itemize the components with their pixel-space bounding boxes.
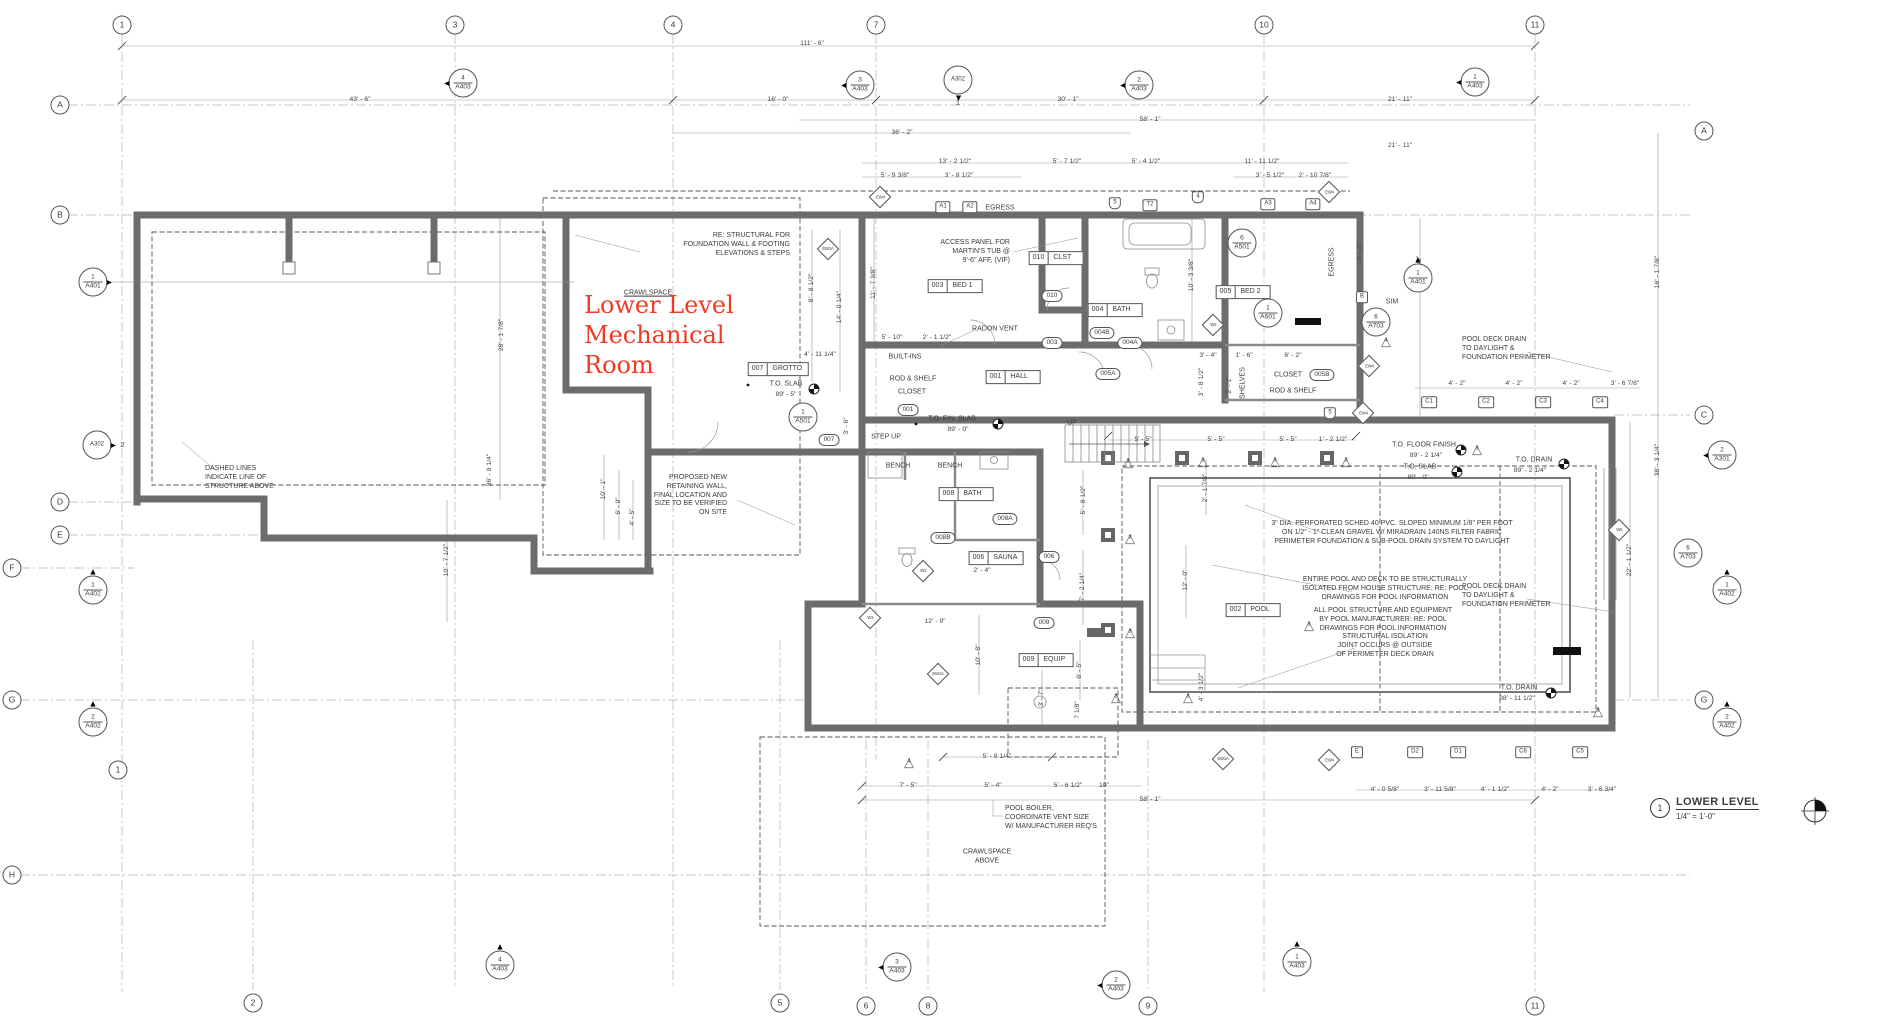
annotation-note: POOL DECK DRAIN TO DAYLIGHT & FOUNDATION… <box>1462 583 1551 609</box>
section-marker-1-a601: 1A601 <box>1254 299 1283 328</box>
dimension-label: 10' - 1" <box>600 478 608 499</box>
annotation-note: ENTIRE POOL AND DECK TO BE STRUCTURALLY … <box>1302 576 1468 602</box>
room-tag-bed-2: 005BED 2 <box>1216 285 1271 299</box>
keynote-triangle: △3 <box>1107 690 1125 705</box>
tag-w6: W6 <box>1608 519 1631 542</box>
section-marker-2-a403: 2A403▲ <box>1125 71 1154 100</box>
type-tag: T2 <box>1142 199 1157 211</box>
dimension-label: 5' - 10" <box>881 334 902 342</box>
annotation-note: PROPOSED NEW RETAINING WALL, FINAL LOCAT… <box>654 474 727 518</box>
dimension-label: 5' - 9 3/8" <box>881 172 910 180</box>
drawing-number: 1 <box>1650 798 1670 818</box>
door-tag: 003 <box>1042 337 1063 349</box>
annotation-note: EGRESS <box>1329 247 1338 276</box>
annotation-note: T.O. FLOOR FINISH <box>1392 442 1456 451</box>
section-marker-1-a401: 1A401▲ <box>1404 264 1433 293</box>
dimension-label: 4' - 1 1/2" <box>1481 786 1510 794</box>
annotation-note: BENCH <box>938 463 963 472</box>
room-tag-sauna: 006SAUNA <box>969 551 1024 565</box>
annotation-note: SHELVES <box>1240 367 1249 399</box>
tag-ew4: EW4 <box>1318 181 1341 204</box>
type-tag: 5 <box>1324 407 1336 419</box>
door-tag: 010 <box>1042 290 1063 302</box>
type-tag: 4 <box>1192 191 1204 203</box>
annotation-note: EGRESS <box>985 205 1014 214</box>
dimension-label: 89' - 0" <box>947 426 968 434</box>
section-marker-2-a403: 2A403▲ <box>1102 971 1131 1000</box>
dimension-label: 3' - 6 3/4" <box>1588 786 1617 794</box>
dimension-label: 16' - 1 7/8" <box>1654 256 1662 288</box>
grid-bubble-f: F <box>3 559 22 578</box>
dimension-label: 4' - 2" <box>1505 380 1522 388</box>
dimension-label: 3' - 7" <box>1038 689 1046 706</box>
section-marker-1-a401: 1A401▲ <box>79 268 108 297</box>
type-tag: C3 <box>1535 396 1551 408</box>
grid-bubble-c-right: C <box>1695 406 1714 425</box>
type-tag: B <box>1356 291 1368 303</box>
door-tag: 006 <box>1039 551 1060 563</box>
keynote-triangle: △4 <box>900 755 918 770</box>
annotation-note: UP <box>1067 420 1077 429</box>
dimension-label: 21' - 11" <box>1388 142 1412 150</box>
dimension-label: 21' - 11" <box>1388 96 1412 104</box>
room-tag-bath: 008BATH <box>939 487 994 501</box>
annotation-note: STEP UP <box>871 434 901 443</box>
keynote-triangle: △3 <box>1179 690 1197 705</box>
dimension-label: 4' - 2" <box>1562 380 1579 388</box>
annotation-note: ACCESS PANEL FOR MARTIN'S TUB @ 9'-6" AF… <box>940 239 1010 265</box>
annotation-note: T.O. SLAB <box>1404 464 1437 473</box>
drawing-scale: 1/4" = 1'-0" <box>1676 812 1759 821</box>
annotation-note: T.O. DRAIN <box>1501 685 1538 694</box>
annotation-note: RE: STRUCTURAL FOR FOUNDATION WALL & FOO… <box>683 232 790 258</box>
dimension-label: 89' - 0" <box>1407 474 1428 482</box>
section-marker-4-a403: 4A403▲ <box>449 69 478 98</box>
grid-bubble-1b: 1 <box>109 761 128 780</box>
annotation-layer: 111' - 6"43' - 6"16' - 0"30' - 1"21' - 1… <box>0 0 1880 1018</box>
section-marker-6-a703: 6A703 <box>1362 308 1391 337</box>
door-tag: 004B <box>1089 327 1114 339</box>
dimension-label: 7 1/8" <box>1074 701 1082 719</box>
dimension-label: 6' - 2" <box>1284 352 1301 360</box>
dimension-label: 14' - 0 1/4" <box>836 291 844 323</box>
dimension-label: 3' - 4" <box>1199 352 1216 360</box>
dimension-label: 3' - 5 1/2" <box>1256 172 1285 180</box>
annotation-note: ROD & SHELF <box>1270 388 1317 397</box>
annotation-note: T.O. FIN. SLAB <box>928 416 976 425</box>
dimension-label: 36' - 9 1/4" <box>486 454 494 486</box>
section-marker-1-a403: 1A403▲ <box>1283 948 1312 977</box>
north-arrow-icon <box>1800 796 1830 826</box>
elevation-target-icon <box>1546 688 1557 699</box>
grid-bubble-g-right: G <box>1695 691 1714 710</box>
dimension-label: 3' - 8 1/2" <box>1198 368 1206 397</box>
dimension-label: 4' - 2" <box>1448 380 1465 388</box>
dimension-label: 12' - 0" <box>1182 569 1190 590</box>
dimension-label: 5' - 5" <box>1134 436 1151 444</box>
dimension-label: 10" <box>1099 782 1109 790</box>
dimension-label: 10' - 8" <box>975 644 983 665</box>
annotation-note: ROD & SHELF <box>890 376 937 385</box>
annotation-note: DASHED LINES INDICATE LINE OF STRUCTURE … <box>205 465 274 491</box>
dimension-label: 58' - 1" <box>1139 116 1160 124</box>
dimension-label: 3' - 6 7/8" <box>1611 380 1640 388</box>
dimension-label: 36' - 2" <box>891 129 912 137</box>
dimension-label: 10' - 3 3/8" <box>1188 259 1196 291</box>
type-tag: C4 <box>1592 396 1608 408</box>
tag-w2: W2 <box>1202 314 1225 337</box>
section-marker-1-a402: 1A402▲ <box>1713 576 1742 605</box>
annotation-note: CLOSET <box>898 389 926 398</box>
grid-bubble-e: E <box>51 526 70 545</box>
dimension-label: 8' - 8 1/2" <box>808 274 816 303</box>
annotation-note: RADON VENT <box>972 326 1018 335</box>
grid-bubble-4: 4 <box>664 16 683 35</box>
grid-bubble-7: 7 <box>867 16 886 35</box>
dimension-label: 6' - 9" <box>615 497 623 514</box>
dimension-label: 6' - 5" <box>1076 661 1084 678</box>
dimension-label: 5' - 8 1/2" <box>1080 486 1088 515</box>
type-tag: A1 <box>935 201 950 213</box>
keynote-triangle: △3 <box>1121 531 1139 546</box>
keynote-triangle: △3 <box>1468 442 1486 457</box>
dimension-label: 4' - 3 1/2" <box>1198 673 1206 702</box>
type-tag: E <box>1351 746 1363 758</box>
keynote-triangle: △3 <box>1119 455 1137 470</box>
tag-ew1a: EW1A <box>817 238 840 261</box>
grid-bubble-3: 3 <box>446 16 465 35</box>
section-marker-3-a403: 3A403▲ <box>846 71 875 100</box>
dimension-label: 89' - 5" <box>775 391 796 399</box>
room-tag-bed-1: 003BED 1 <box>928 279 983 293</box>
section-marker-6-a703: 6A703 <box>1674 539 1703 568</box>
dimension-label: 7' - 5" <box>899 782 916 790</box>
annotation-note: CRAWLSPACE ABOVE <box>963 848 1011 866</box>
dimension-label: 22' - 1 1/2" <box>1626 544 1634 576</box>
tag-ew4: EW4 <box>1358 355 1381 378</box>
grid-bubble-11: 11 <box>1526 16 1545 35</box>
annotation-note: CLOSET <box>1274 372 1302 381</box>
grid-bubble-b: B <box>51 206 70 225</box>
dimension-label: 5' - 2" <box>1356 243 1364 260</box>
dimension-label: 30' - 1" <box>1057 96 1078 104</box>
grid-bubble-a-right: A <box>1695 122 1714 141</box>
type-tag: C2 <box>1478 396 1494 408</box>
elevation-target-icon <box>1559 459 1570 470</box>
elevation-target-icon <box>1456 445 1467 456</box>
dimension-label: 4' - 0 5/8" <box>1371 786 1400 794</box>
section-marker-3-a403: 3A403▲ <box>883 953 912 982</box>
dimension-label: 2' - 1 1/2" <box>923 334 952 342</box>
dimension-label: 38' - 3 1/4" <box>1654 444 1662 476</box>
dimension-label: 13' - 2 1/2" <box>939 158 971 166</box>
tag-ew1a: EW1A <box>1212 748 1235 771</box>
dimension-label: 2' - 10 7/8" <box>1299 172 1331 180</box>
dimension-label: 2' - 1" <box>1226 376 1234 393</box>
section-marker-2-a402: 2A402▲ <box>79 708 108 737</box>
type-tag: D1 <box>1450 746 1466 758</box>
dimension-label: 5' - 4 1/2" <box>1132 158 1161 166</box>
keynote-triangle: △3 <box>1337 454 1355 469</box>
grid-bubble-9: 9 <box>1139 997 1158 1016</box>
keynote-triangle: △3 <box>1194 454 1212 469</box>
annotation-note: T.O. SLAB <box>770 381 803 390</box>
dimension-label: 58' - 1" <box>1139 796 1160 804</box>
keynote-triangle: △3 <box>1121 625 1139 640</box>
annotation-note: STRUCTURAL ISOLATION JOINT OCCURS @ OUTS… <box>1336 633 1434 659</box>
dimension-label: 28' - 1 7/8" <box>498 319 506 351</box>
type-tag: C6 <box>1515 746 1531 758</box>
section-marker-1-a501: 1A501 <box>789 403 818 432</box>
type-tag: C1 <box>1421 396 1437 408</box>
section-marker-2-a301: 2A301▲ <box>1708 441 1737 470</box>
drawing-title: LOWER LEVEL <box>1676 796 1759 810</box>
door-tag: 009 <box>1034 617 1055 629</box>
section-marker-4-a403: 4A403▲ <box>486 951 515 980</box>
dimension-label: 5' - 7 1/2" <box>1053 158 1082 166</box>
dimension-label: 111' - 6" <box>800 40 824 48</box>
grid-bubble-h: H <box>3 866 22 885</box>
annotation-note: ALL POOL STRUCTURE AND EQUIPMENT BY POOL… <box>1314 607 1452 633</box>
room-tag-bath: 004BATH <box>1088 303 1143 317</box>
dimension-label: 16' - 0" <box>767 96 788 104</box>
tag-ew4: EW4 <box>1318 749 1341 772</box>
door-tag: 004A <box>1117 337 1142 349</box>
dimension-label: 1' - 2 1/2" <box>1319 436 1348 444</box>
type-tag: 5 <box>1109 197 1121 209</box>
annotation-note: POOL BOILER, COORDINATE VENT SIZE W/ MAN… <box>1005 805 1097 831</box>
dimension-label: 43' - 6" <box>349 96 370 104</box>
grid-bubble-a: A <box>51 96 70 115</box>
dimension-label: 2' - 4" <box>973 567 990 575</box>
section-marker-1-a402: 1A402▲ <box>79 576 108 605</box>
grid-bubble-d: D <box>51 493 70 512</box>
dimension-label: 3' - 6" <box>843 417 851 434</box>
room-tag-clst: 010CLST <box>1029 251 1084 265</box>
tag-ew1a: EW1A <box>927 663 950 686</box>
door-tag: 008A <box>992 513 1017 525</box>
tag-w2: W2 <box>912 560 935 583</box>
dimension-label: 89' - 2 1/4" <box>1410 452 1442 460</box>
grid-bubble-1: 1 <box>113 16 132 35</box>
dimension-label: 1' - 6" <box>1235 352 1252 360</box>
grid-bubble-2: 2 <box>244 994 263 1013</box>
grid-bubble-11b: 11 <box>1526 997 1545 1016</box>
tag-ew4: EW4 <box>869 186 892 209</box>
dimension-label: 11' - 7 3/8" <box>870 267 878 299</box>
dimension-label: 5' - 5" <box>1279 436 1296 444</box>
grid-bubble-10: 10 <box>1255 16 1274 35</box>
type-tag: C5 <box>1572 746 1588 758</box>
keynote-triangle: △3 <box>1266 454 1284 469</box>
dimension-label: 4' - 2" <box>1541 786 1558 794</box>
dimension-label: 89' - 2 1/4" <box>1514 467 1546 475</box>
section-marker-a302-1: A3021▲ <box>944 66 973 95</box>
dimension-label: 5' - 9 1/4" <box>983 753 1012 761</box>
room-tag-grotto: 007GROTTO <box>748 362 809 376</box>
room-tag-pool: 002POOL <box>1226 603 1281 617</box>
tag-ew4: EW4 <box>1352 402 1375 425</box>
annotation-note: T.O. DRAIN <box>1516 457 1553 466</box>
tag-w2: W2 <box>859 607 882 630</box>
elevation-target-icon <box>1452 467 1463 478</box>
dimension-label: 4' - 11 1/4" <box>804 351 836 359</box>
elevation-target-icon <box>993 419 1004 430</box>
dimension-label: 5' - 4" <box>984 782 1001 790</box>
dimension-label: 10' - 7 1/2" <box>443 544 451 576</box>
dimension-label: 5' - 5" <box>1207 436 1224 444</box>
annotation-note: SIM <box>1386 299 1398 308</box>
dimension-label: 4' - 5" <box>629 508 637 525</box>
dimension-label: 88' - 11 1/2" <box>1499 695 1535 703</box>
type-tag: A3 <box>1260 198 1275 210</box>
room-tag-equip: 009EQUIP <box>1019 653 1074 667</box>
dimension-label: 3' - 11 5/8" <box>1424 786 1456 794</box>
grid-bubble-5: 5 <box>771 994 790 1013</box>
section-marker-2-a402: 2A402▲ <box>1713 708 1742 737</box>
annotation-note: POOL DECK DRAIN TO DAYLIGHT & FOUNDATION… <box>1462 336 1551 362</box>
grid-bubble-g: G <box>3 691 22 710</box>
section-marker-1-a403: 1A403▲ <box>1461 68 1490 97</box>
door-tag: 007 <box>819 434 840 446</box>
annotation-note: BENCH <box>886 463 911 472</box>
grid-bubble-8: 8 <box>919 997 938 1016</box>
door-tag: 008B <box>930 532 955 544</box>
drawing-title-block: 1 LOWER LEVEL 1/4" = 1'-0" <box>1650 796 1759 821</box>
door-tag: 001 <box>898 404 919 416</box>
section-marker-6-a501: 6A501 <box>1228 229 1257 258</box>
dimension-label: 2' - 1 7/8" <box>1202 474 1210 503</box>
elevation-target-icon <box>809 384 820 395</box>
dimension-label: 5' - 6 1/2" <box>1054 782 1083 790</box>
section-marker-a302-2: A3022▲ <box>83 431 112 460</box>
type-tag: D2 <box>1407 746 1423 758</box>
grid-bubble-6: 6 <box>857 997 876 1016</box>
door-tag: 005A <box>1095 368 1120 380</box>
dimension-label: 7' - 2 1/4" <box>1079 573 1087 602</box>
type-tag: A2 <box>962 201 977 213</box>
dimension-label: 3' - 8 1/2" <box>945 172 974 180</box>
type-tag: A4 <box>1305 198 1320 210</box>
dimension-label: 12' - 9" <box>924 618 945 626</box>
floor-plan-sheet: 111' - 6"43' - 6"16' - 0"30' - 1"21' - 1… <box>0 0 1880 1018</box>
dimension-label: 11' - 11 1/2" <box>1244 158 1279 166</box>
keynote-triangle: △3 <box>1589 704 1607 719</box>
door-tag: 005B <box>1309 369 1334 381</box>
room-tag-hall: 001HALL <box>986 370 1041 384</box>
annotation-note: 3" DIA. PERFORATED SCHED 40 PVC. SLOPED … <box>1271 520 1512 546</box>
annotation-note: BUILT-INS <box>889 354 922 363</box>
mechanical-room-note: Lower Level Mechanical Room <box>584 290 734 380</box>
